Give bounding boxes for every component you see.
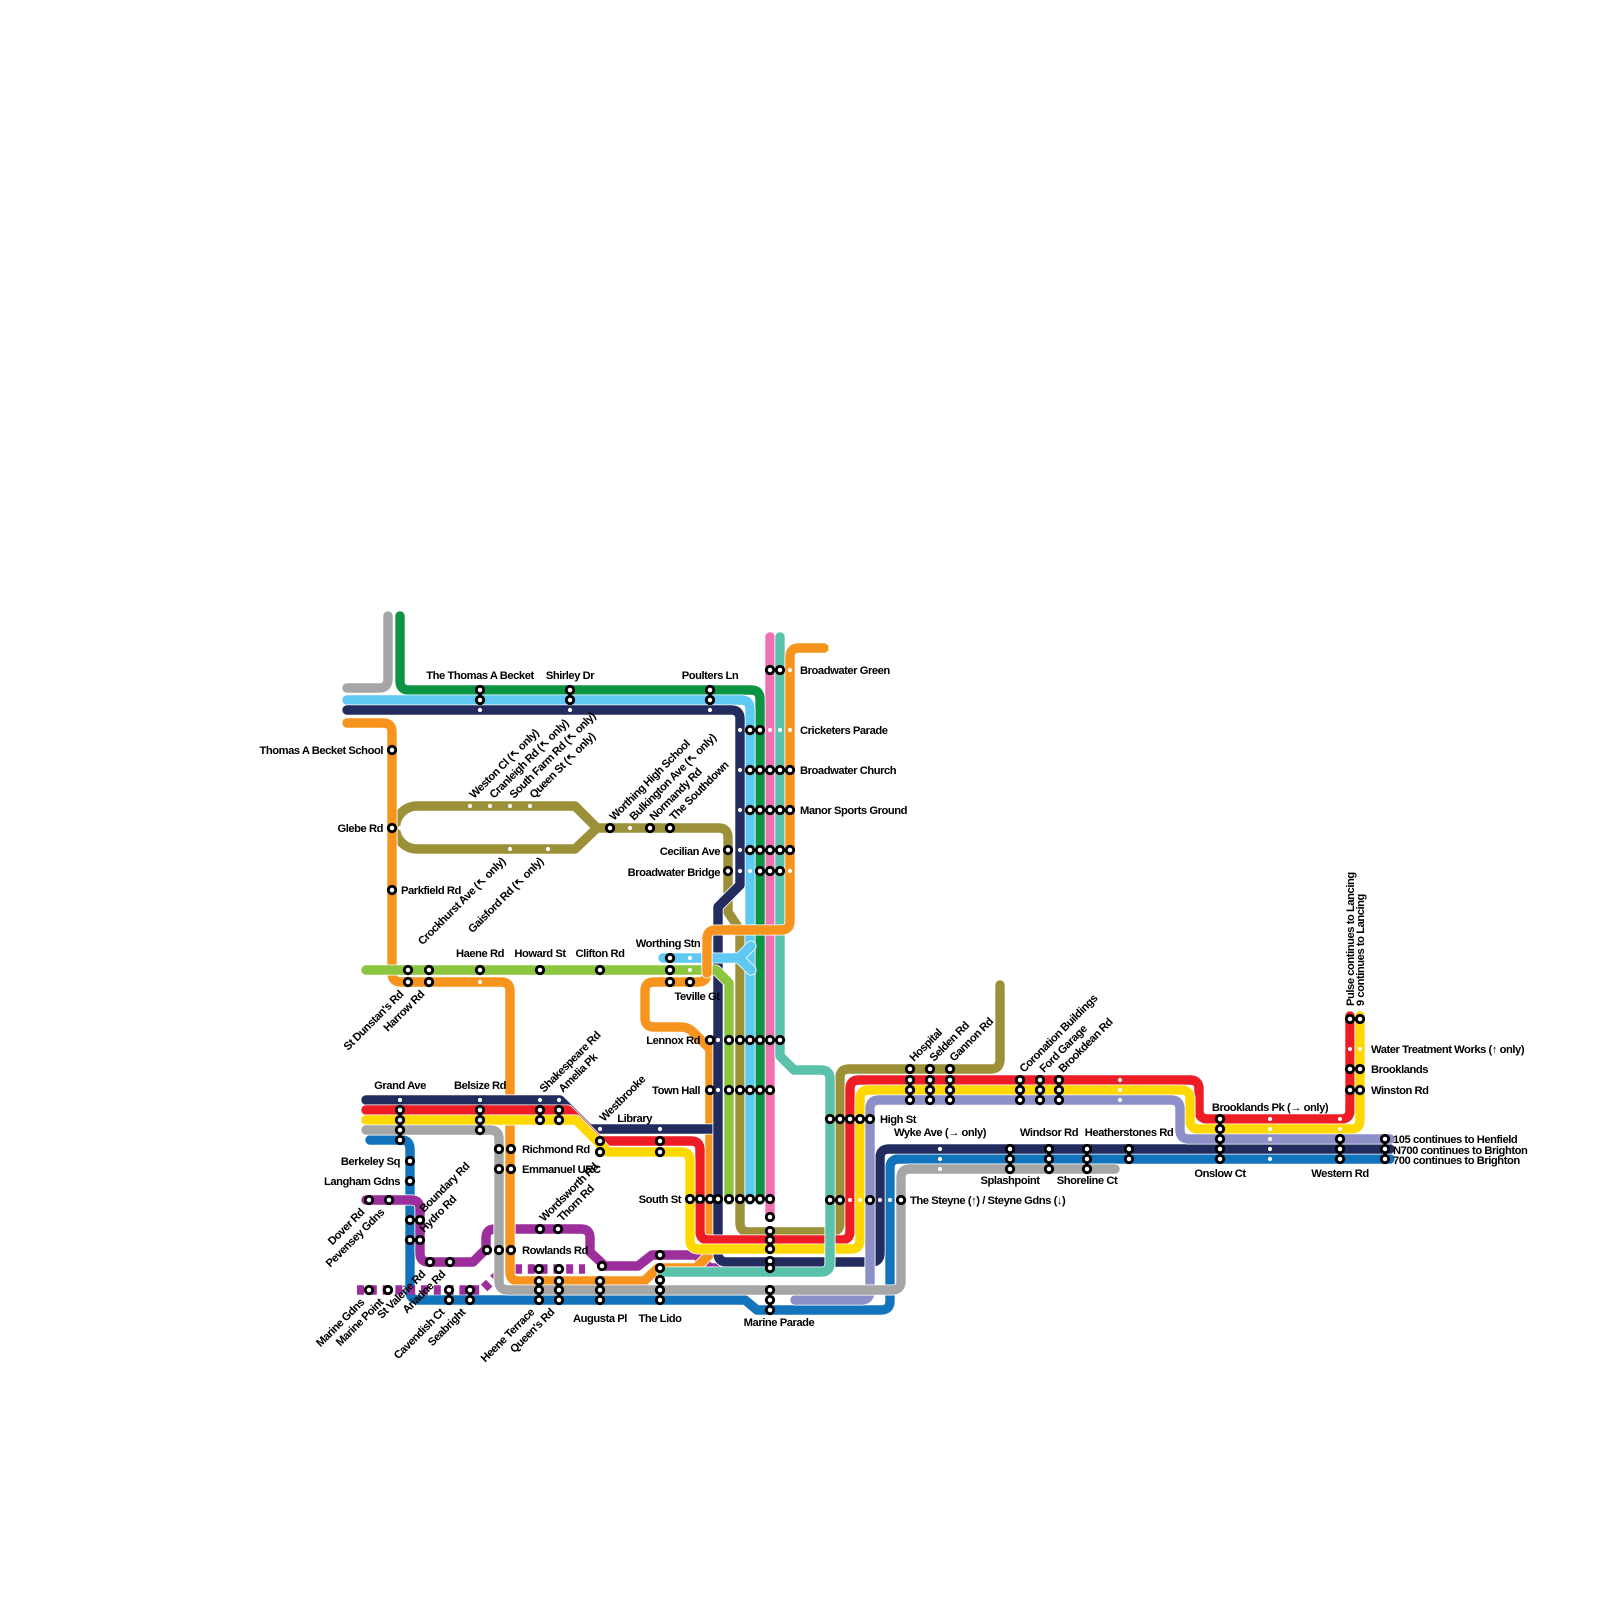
svg-text:Manor Sports Ground: Manor Sports Ground (800, 805, 908, 817)
svg-text:Western Rd: Western Rd (1311, 1168, 1369, 1180)
svg-text:Broadwater Green: Broadwater Green (800, 665, 890, 677)
svg-text:Berkeley Sq: Berkeley Sq (341, 1156, 401, 1168)
svg-text:Clifton Rd: Clifton Rd (576, 948, 626, 960)
svg-text:Brooklands Pk (→ only): Brooklands Pk (→ only) (1212, 1102, 1329, 1114)
svg-text:Worthing Stn: Worthing Stn (636, 938, 701, 950)
svg-text:Shoreline Ct: Shoreline Ct (1057, 1175, 1118, 1187)
svg-text:Library: Library (617, 1113, 653, 1125)
svg-text:Winston Rd: Winston Rd (1371, 1085, 1429, 1097)
svg-text:Marine Parade: Marine Parade (744, 1317, 815, 1329)
svg-text:Broadwater Church: Broadwater Church (800, 765, 897, 777)
svg-text:Cricketers Parade: Cricketers Parade (800, 725, 888, 737)
svg-text:Haene Rd: Haene Rd (456, 948, 505, 960)
svg-text:Glebe Rd: Glebe Rd (337, 823, 383, 835)
svg-text:Howard St: Howard St (514, 948, 566, 960)
svg-text:Brooklands: Brooklands (1371, 1064, 1428, 1076)
svg-text:Parkfield Rd: Parkfield Rd (401, 885, 461, 897)
svg-text:Richmond Rd: Richmond Rd (522, 1144, 590, 1156)
svg-text:Water Treatment Works (↑ only): Water Treatment Works (↑ only) (1371, 1044, 1525, 1056)
svg-text:Lennox Rd: Lennox Rd (646, 1035, 700, 1047)
svg-text:High St: High St (880, 1114, 917, 1126)
svg-text:Belsize Rd: Belsize Rd (454, 1080, 507, 1092)
svg-text:Broadwater Bridge: Broadwater Bridge (628, 867, 721, 879)
svg-text:Langham Gdns: Langham Gdns (324, 1176, 400, 1188)
svg-text:Shirley Dr: Shirley Dr (546, 670, 595, 682)
svg-text:The Steyne (↑) / Steyne Gdns (: The Steyne (↑) / Steyne Gdns (↓) (910, 1195, 1066, 1207)
svg-text:Poulters Ln: Poulters Ln (682, 670, 739, 682)
svg-text:Grand Ave: Grand Ave (374, 1080, 426, 1092)
svg-text:Wyke Ave (→ only): Wyke Ave (→ only) (894, 1127, 987, 1139)
svg-text:Onslow Ct: Onslow Ct (1194, 1168, 1246, 1180)
svg-text:Augusta Pl: Augusta Pl (573, 1313, 627, 1325)
svg-text:South St: South St (639, 1194, 682, 1206)
svg-text:The Lido: The Lido (638, 1313, 682, 1325)
svg-text:Town Hall: Town Hall (652, 1085, 700, 1097)
svg-text:Windsor Rd: Windsor Rd (1020, 1127, 1079, 1139)
svg-text:Heatherstones Rd: Heatherstones Rd (1085, 1127, 1174, 1139)
svg-text:The Thomas A Becket: The Thomas A Becket (426, 670, 534, 682)
svg-text:9 continues to Lancing: 9 continues to Lancing (1355, 893, 1367, 1006)
svg-text:Splashpoint: Splashpoint (980, 1175, 1040, 1187)
svg-text:Thomas A Becket School: Thomas A Becket School (259, 745, 383, 757)
svg-text:700 continues to Brighton: 700 continues to Brighton (1393, 1155, 1520, 1167)
svg-text:Rowlands Rd: Rowlands Rd (522, 1245, 589, 1257)
svg-text:Teville Gt: Teville Gt (674, 991, 720, 1003)
svg-text:Cecilian Ave: Cecilian Ave (660, 846, 721, 858)
